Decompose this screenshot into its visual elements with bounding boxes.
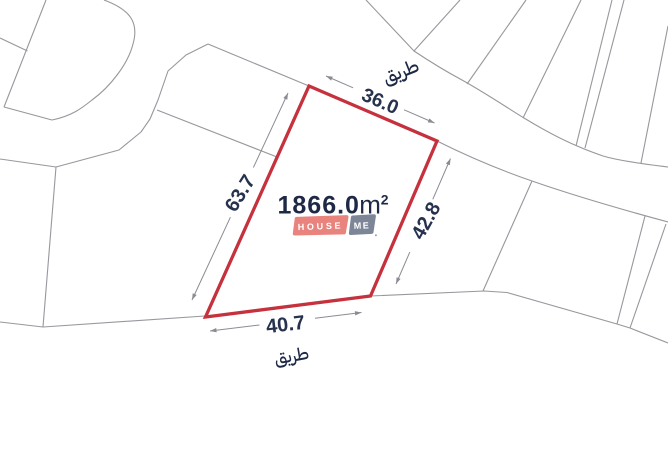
svg-text:ME: ME	[354, 220, 371, 231]
svg-text:2: 2	[381, 191, 389, 207]
svg-text:40.7: 40.7	[265, 312, 306, 338]
svg-text:42.8: 42.8	[407, 199, 445, 244]
svg-text:1866.0: 1866.0	[278, 192, 360, 220]
svg-text:HOUSE: HOUSE	[298, 220, 344, 232]
